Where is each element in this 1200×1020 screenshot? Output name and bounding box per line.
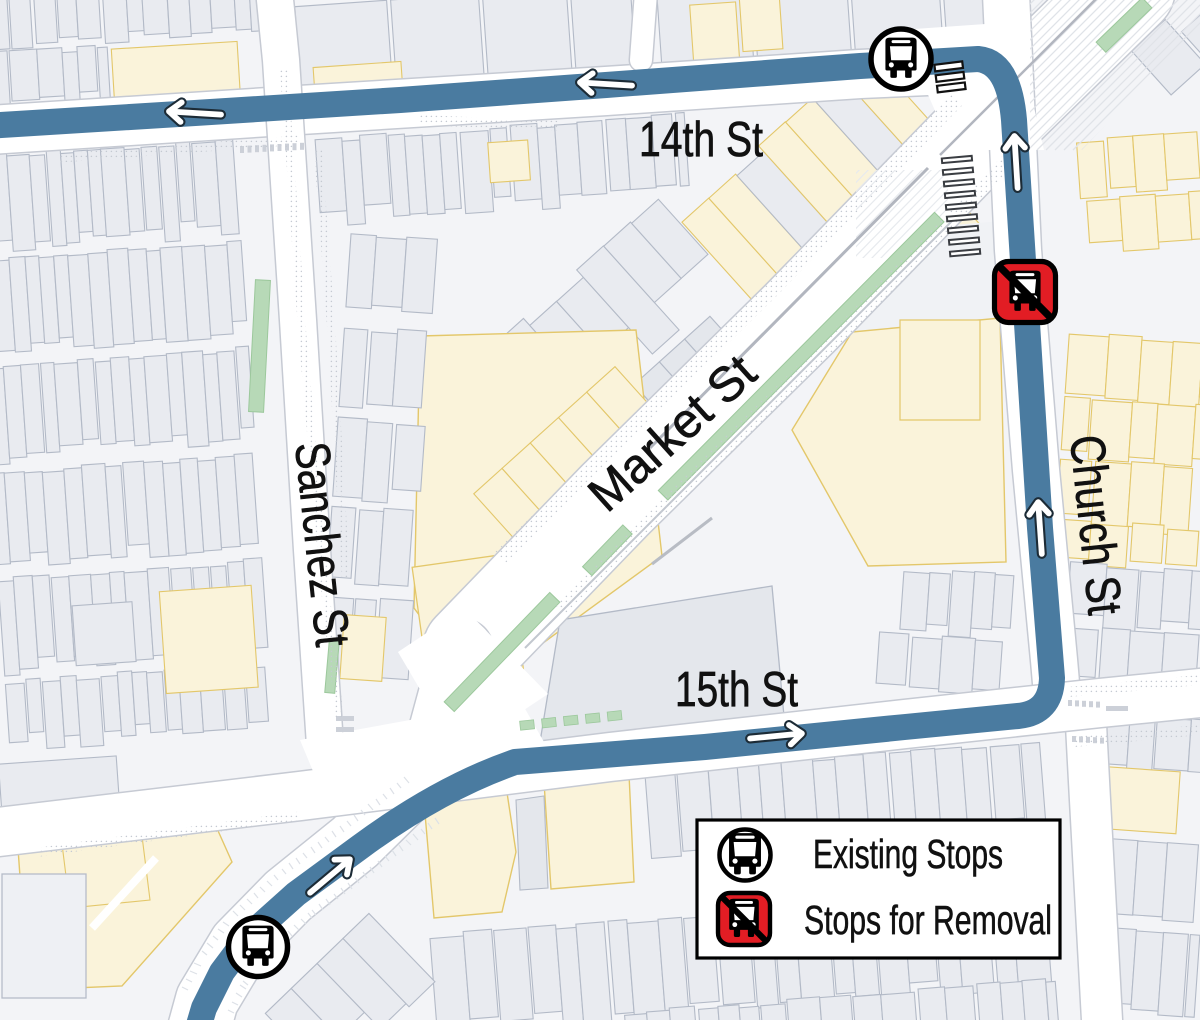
svg-text:15th St: 15th St — [675, 663, 798, 717]
svg-text:14th St: 14th St — [639, 113, 763, 167]
svg-text:Existing Stops: Existing Stops — [813, 831, 1003, 877]
svg-text:Stops for Removal: Stops for Removal — [804, 897, 1052, 943]
